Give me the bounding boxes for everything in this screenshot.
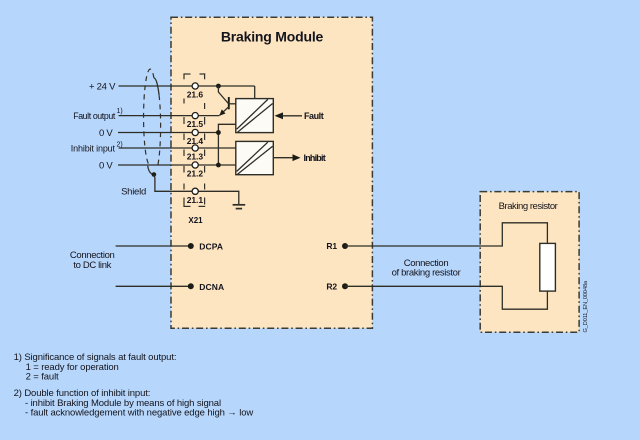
svg-text:to DC link: to DC link	[73, 260, 111, 271]
svg-text:21.2: 21.2	[187, 168, 204, 178]
svg-text:1): 1)	[117, 108, 123, 115]
svg-text:R2: R2	[326, 282, 337, 292]
svg-text:Shield: Shield	[121, 187, 146, 198]
svg-text:of braking resistor: of braking resistor	[392, 268, 461, 279]
svg-text:0 V: 0 V	[99, 128, 113, 139]
svg-text:21.3: 21.3	[187, 151, 204, 161]
svg-text:Braking Module: Braking Module	[221, 29, 324, 45]
svg-text:Braking resistor: Braking resistor	[499, 201, 558, 212]
svg-text:DCPA: DCPA	[199, 242, 223, 252]
svg-text:Inhibit input: Inhibit input	[71, 143, 116, 153]
svg-text:2 = fault: 2 = fault	[26, 372, 59, 383]
svg-text:21.4: 21.4	[187, 136, 204, 146]
svg-text:Fault output: Fault output	[73, 111, 116, 121]
svg-text:R1: R1	[326, 241, 337, 251]
svg-text:0 V: 0 V	[99, 160, 113, 171]
svg-text:21.5: 21.5	[187, 119, 204, 129]
svg-text:X21: X21	[188, 216, 203, 225]
svg-text:+ 24 V: + 24 V	[89, 81, 116, 92]
svg-text:G_D011_EN_00048a: G_D011_EN_00048a	[583, 280, 589, 332]
svg-text:DCNA: DCNA	[199, 282, 224, 292]
svg-text:21.1: 21.1	[187, 195, 204, 205]
svg-text:2): 2)	[117, 141, 123, 148]
svg-text:- fault acknowledgement with n: - fault acknowledgement with negative ed…	[25, 408, 253, 419]
svg-text:Fault: Fault	[304, 111, 324, 121]
svg-text:21.6: 21.6	[187, 89, 204, 99]
svg-text:Inhibit: Inhibit	[304, 153, 326, 163]
